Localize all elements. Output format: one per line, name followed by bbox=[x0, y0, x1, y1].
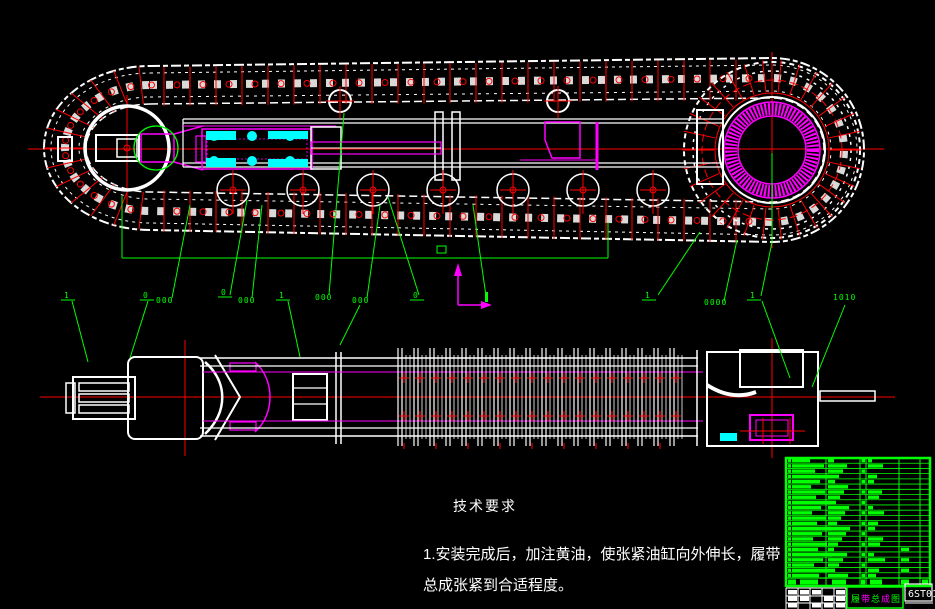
callout-number: 1 bbox=[750, 291, 756, 300]
carrier-rollers bbox=[326, 86, 572, 118]
side-view bbox=[28, 52, 884, 248]
housing-cyan-block bbox=[720, 433, 737, 441]
callout-number: 0 bbox=[221, 288, 227, 297]
callout-number: 1 bbox=[279, 291, 285, 300]
ucs-axis-icon bbox=[454, 263, 492, 309]
callout-number: 000 bbox=[156, 296, 173, 305]
track-chain-outline bbox=[44, 58, 864, 242]
leader-lines bbox=[72, 113, 845, 387]
title-block: 履带总成图 6ST01 bbox=[786, 584, 935, 609]
tech-note-line-1: 1.安装完成后，加注黄油，使张紧油缸向外伸长，履带 bbox=[423, 543, 781, 564]
callout-number: 0000 bbox=[704, 298, 727, 307]
tech-note-line-2: 总成张紧到合适程度。 bbox=[423, 574, 573, 595]
callout-number: 000 bbox=[238, 296, 255, 305]
signature-grid bbox=[786, 588, 846, 609]
callout-number: 1 bbox=[645, 291, 651, 300]
track-frame bbox=[183, 110, 723, 184]
cad-viewport[interactable]: 100000000100000001000011010 履带总成图 6ST01 … bbox=[0, 0, 935, 609]
plan-view bbox=[40, 338, 895, 458]
svg-text:履: 履 bbox=[851, 594, 860, 604]
callout-number: 1010 bbox=[833, 293, 856, 302]
svg-text:成: 成 bbox=[881, 593, 890, 604]
callout-number: 000 bbox=[352, 296, 369, 305]
track-shoes bbox=[398, 348, 682, 449]
cad-drawing-canvas[interactable]: 100000000100000001000011010 履带总成图 6ST01 bbox=[0, 0, 935, 609]
callout-number: 0 bbox=[413, 291, 419, 300]
callout-number: 1 bbox=[64, 291, 70, 300]
callout-number: 0 bbox=[143, 291, 149, 300]
svg-text:总: 总 bbox=[871, 593, 880, 604]
drawing-code: 6ST01 bbox=[908, 589, 935, 600]
frame-bracket bbox=[545, 122, 580, 158]
svg-text:带: 带 bbox=[861, 594, 870, 604]
svg-text:图: 图 bbox=[891, 594, 900, 604]
bottom-rollers bbox=[217, 170, 669, 214]
drawing-title: 履带总成图 bbox=[851, 593, 900, 604]
tech-requirements-heading: 技术要求 bbox=[453, 496, 517, 516]
drive-housing bbox=[697, 350, 875, 446]
callout-number: 000 bbox=[315, 293, 332, 302]
idler-fork bbox=[66, 357, 203, 439]
bom-table bbox=[786, 458, 930, 586]
axle-stub bbox=[820, 391, 875, 401]
